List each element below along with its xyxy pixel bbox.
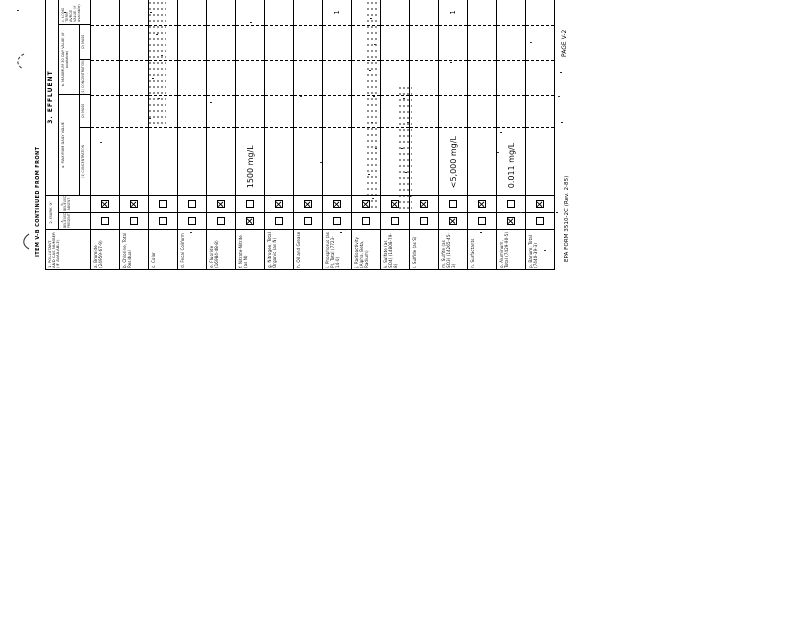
present-checkbox — [188, 217, 196, 225]
believed-absent-cell — [265, 195, 293, 212]
max-daily-mass — [91, 95, 119, 128]
max-daily-value: 0.011 mg/L — [497, 128, 525, 196]
believed-absent-cell — [294, 195, 322, 212]
pollutant-label: n. Surfactants — [468, 229, 496, 269]
max-30day-concentration — [178, 60, 206, 95]
believed-absent-cell — [526, 195, 554, 212]
pollutant-row: n. Surfactants — [468, 0, 497, 269]
pollutant-label: d. Fecal Coliform — [178, 229, 206, 269]
absent-checkbox — [217, 200, 225, 208]
believed-absent-cell — [439, 195, 467, 212]
believed-absent-cell — [149, 195, 177, 212]
header-mass: (2) MASS — [79, 24, 91, 59]
header-concentration: (1) CONCENTRATION — [79, 59, 91, 94]
absent-checkbox — [304, 200, 312, 208]
max-daily-value — [410, 128, 438, 196]
header-mass: (2) MASS — [79, 94, 91, 127]
believed-present-cell — [526, 212, 554, 229]
pollutant-label: a. Bromide (24959-67-9) — [91, 229, 119, 269]
present-checkbox — [391, 217, 399, 225]
present-checkbox — [101, 217, 109, 225]
header-effluent: 3. EFFLUENT — [46, 0, 59, 195]
believed-present-cell — [497, 212, 525, 229]
max-30day-mass — [178, 25, 206, 60]
believed-present-cell — [149, 212, 177, 229]
long-term-value — [497, 0, 525, 25]
believed-present-cell — [352, 212, 380, 229]
max-30day-mass — [410, 25, 438, 60]
max-30day-concentration — [236, 60, 264, 95]
scanned-form-page: ITEM V-B CONTINUED FROM FRONT 1. POLLUTA… — [33, 0, 585, 270]
table-header: 1. POLLUTANT AND CAS NUMBER (IF AVAILABL… — [46, 0, 91, 269]
present-checkbox — [362, 217, 370, 225]
pollutant-row: e. Fluoride (16984-48-8) — [207, 0, 236, 269]
max-daily-value — [207, 128, 235, 196]
absent-checkbox — [275, 200, 283, 208]
max-daily-mass — [236, 95, 264, 128]
believed-absent-cell — [323, 195, 351, 212]
believed-absent-cell — [178, 195, 206, 212]
header-max-30day-value: b. MAXIMUM 30 DAY VALUE (if available) — [59, 24, 79, 94]
pollutant-row: o. Aluminum, Total (7429-90-5) 0.011 mg/… — [497, 0, 526, 269]
max-30day-mass — [323, 25, 351, 60]
present-checkbox — [478, 217, 486, 225]
long-term-value — [410, 0, 438, 25]
believed-absent-cell — [236, 195, 264, 212]
max-30day-concentration — [468, 60, 496, 95]
max-30day-mass — [120, 25, 148, 60]
long-term-value — [91, 0, 119, 25]
max-30day-mass — [236, 25, 264, 60]
max-daily-mass — [526, 95, 554, 128]
believed-present-cell — [207, 212, 235, 229]
max-30day-concentration — [410, 60, 438, 95]
max-daily-value — [265, 128, 293, 196]
believed-present-cell — [120, 212, 148, 229]
epa-form-number: EPA FORM 3510-2C (Rev. 2-85) — [564, 176, 570, 262]
long-term-value — [236, 0, 264, 25]
max-daily-value — [178, 128, 206, 196]
present-checkbox — [304, 217, 312, 225]
believed-present-cell — [410, 212, 438, 229]
page-number: PAGE V-2 — [561, 30, 568, 57]
present-checkbox — [333, 217, 341, 225]
max-daily-value — [149, 128, 177, 196]
pollutant-label: m. Sulfite (as SO3) (14265-45-3) — [439, 229, 467, 269]
believed-present-cell — [236, 212, 264, 229]
max-30day-concentration — [207, 60, 235, 95]
max-30day-concentration — [294, 60, 322, 95]
absent-checkbox — [420, 200, 428, 208]
header-max-daily-value: a. MAXIMUM DAILY VALUE — [59, 94, 79, 195]
believed-present-cell — [91, 212, 119, 229]
absent-checkbox — [449, 200, 457, 208]
believed-present-cell — [323, 212, 351, 229]
long-term-value — [265, 0, 293, 25]
pollutant-row: g. Nitrogen, Total Organic (as N) — [265, 0, 294, 269]
max-30day-concentration — [323, 60, 351, 95]
believed-absent-cell — [410, 195, 438, 212]
header-believed-present: a. BELIEVED PRESENT — [59, 212, 91, 229]
max-daily-mass — [120, 95, 148, 128]
max-daily-mass — [323, 95, 351, 128]
max-daily-value — [468, 128, 496, 196]
believed-absent-cell — [468, 195, 496, 212]
max-30day-concentration — [91, 60, 119, 95]
believed-present-cell — [468, 212, 496, 229]
max-30day-mass — [526, 25, 554, 60]
scan-speckle-strip — [148, 0, 166, 128]
max-30day-mass — [265, 25, 293, 60]
max-daily-value — [526, 128, 554, 196]
header-long-term-value: c. LONG TERM AVRGE VALUE (if available) — [59, 0, 91, 24]
pollutant-row: f. Nitrate-Nitrite (as N) 1500 mg/L — [236, 0, 265, 269]
max-daily-mass — [468, 95, 496, 128]
max-daily-value — [91, 128, 119, 196]
pollutant-label: c. Color — [149, 229, 177, 269]
pollutant-label: j. Radioactivity (Alpha, Beta, Radium) — [352, 229, 380, 269]
header-pollutant-column: 1. POLLUTANT AND CAS NUMBER (IF AVAILABL… — [46, 229, 91, 269]
max-daily-value — [323, 128, 351, 196]
header-believed-absent: b. BELIEVED ABSENT — [59, 195, 91, 212]
long-term-value — [381, 0, 409, 25]
believed-present-cell — [265, 212, 293, 229]
pollutant-row: h. Oil and Grease — [294, 0, 323, 269]
pollutant-table: 1. POLLUTANT AND CAS NUMBER (IF AVAILABL… — [45, 0, 555, 270]
absent-checkbox — [246, 200, 254, 208]
max-30day-mass — [468, 25, 496, 60]
absent-checkbox — [536, 200, 544, 208]
pollutant-label: e. Fluoride (16984-48-8) — [207, 229, 235, 269]
pollutant-label: o. Aluminum, Total (7429-90-5) — [497, 229, 525, 269]
scan-speckle-strip — [398, 85, 412, 211]
absent-checkbox — [130, 200, 138, 208]
believed-present-cell — [178, 212, 206, 229]
present-checkbox — [420, 217, 428, 225]
header-concentration: (1) CONCENTRATION — [79, 127, 91, 195]
max-daily-mass — [207, 95, 235, 128]
max-daily-mass — [439, 95, 467, 128]
absent-checkbox — [478, 200, 486, 208]
max-daily-mass — [410, 95, 438, 128]
max-30day-concentration — [265, 60, 293, 95]
long-term-value — [526, 0, 554, 25]
pollutant-label: k. Sulfate (as SO4) (14808-79-8) — [381, 229, 409, 269]
pollutant-label: p. Barium, Total (7440-39-3) — [526, 229, 554, 269]
believed-present-cell — [381, 212, 409, 229]
pollutant-label: i. Phosphorus (as P), Total (7723-14-0) — [323, 229, 351, 269]
believed-absent-cell — [497, 195, 525, 212]
max-30day-mass — [294, 25, 322, 60]
believed-present-cell — [439, 212, 467, 229]
absent-checkbox — [188, 200, 196, 208]
max-daily-value: 1500 mg/L — [236, 128, 264, 196]
pollutant-row: i. Phosphorus (as P), Total (7723-14-0) … — [323, 0, 352, 269]
present-checkbox — [159, 217, 167, 225]
max-30day-mass — [207, 25, 235, 60]
long-term-value — [207, 0, 235, 25]
max-30day-mass — [381, 25, 409, 60]
max-daily-mass — [497, 95, 525, 128]
believed-present-cell — [294, 212, 322, 229]
absent-checkbox — [159, 200, 167, 208]
present-checkbox — [246, 217, 254, 225]
max-30day-concentration — [497, 60, 525, 95]
continued-from-front-label: ITEM V-B CONTINUED FROM FRONT — [35, 107, 41, 257]
present-checkbox — [449, 217, 457, 225]
long-term-value — [468, 0, 496, 25]
absent-checkbox — [101, 200, 109, 208]
pollutant-label: l. Sulfide (as S) — [410, 229, 438, 269]
absent-checkbox — [507, 200, 515, 208]
present-checkbox — [130, 217, 138, 225]
long-term-value — [178, 0, 206, 25]
pollutant-row: p. Barium, Total (7440-39-3) — [526, 0, 555, 269]
pollutant-label: b. Chlorine, Total Residual — [120, 229, 148, 269]
present-checkbox — [275, 217, 283, 225]
scan-noise-dots — [0, 0, 2, 1]
max-daily-value — [120, 128, 148, 196]
max-30day-concentration — [526, 60, 554, 95]
believed-absent-cell — [207, 195, 235, 212]
pen-mark-arc — [13, 52, 27, 72]
max-daily-mass — [265, 95, 293, 128]
pen-mark-paren — [20, 233, 32, 251]
pollutant-row: a. Bromide (24959-67-9) — [91, 0, 120, 269]
pollutant-row: l. Sulfide (as S) — [410, 0, 439, 269]
pollutant-label: g. Nitrogen, Total Organic (as N) — [265, 229, 293, 269]
max-30day-concentration — [120, 60, 148, 95]
pollutant-row: d. Fecal Coliform — [178, 0, 207, 269]
believed-absent-cell — [120, 195, 148, 212]
header-mark-x: 2. MARK 'X' — [46, 195, 59, 229]
long-term-value: 1 — [439, 0, 467, 25]
max-daily-mass — [178, 95, 206, 128]
long-term-value — [294, 0, 322, 25]
pollutant-label: f. Nitrate-Nitrite (as N) — [236, 229, 264, 269]
max-30day-mass — [497, 25, 525, 60]
max-daily-mass — [294, 95, 322, 128]
pollutant-label: h. Oil and Grease — [294, 229, 322, 269]
long-term-value — [120, 0, 148, 25]
max-30day-concentration — [439, 60, 467, 95]
pollutant-row: m. Sulfite (as SO3) (14265-45-3) <5,000 … — [439, 0, 468, 269]
max-daily-value: <5,000 mg/L — [439, 128, 467, 196]
present-checkbox — [536, 217, 544, 225]
long-term-value: 1 — [323, 0, 351, 25]
believed-absent-cell — [91, 195, 119, 212]
max-daily-value — [294, 128, 322, 196]
pollutant-row: b. Chlorine, Total Residual — [120, 0, 149, 269]
present-checkbox — [507, 217, 515, 225]
scan-speckle-strip — [366, 0, 378, 212]
absent-checkbox — [333, 200, 341, 208]
max-30day-mass — [439, 25, 467, 60]
max-30day-mass — [91, 25, 119, 60]
present-checkbox — [217, 217, 225, 225]
